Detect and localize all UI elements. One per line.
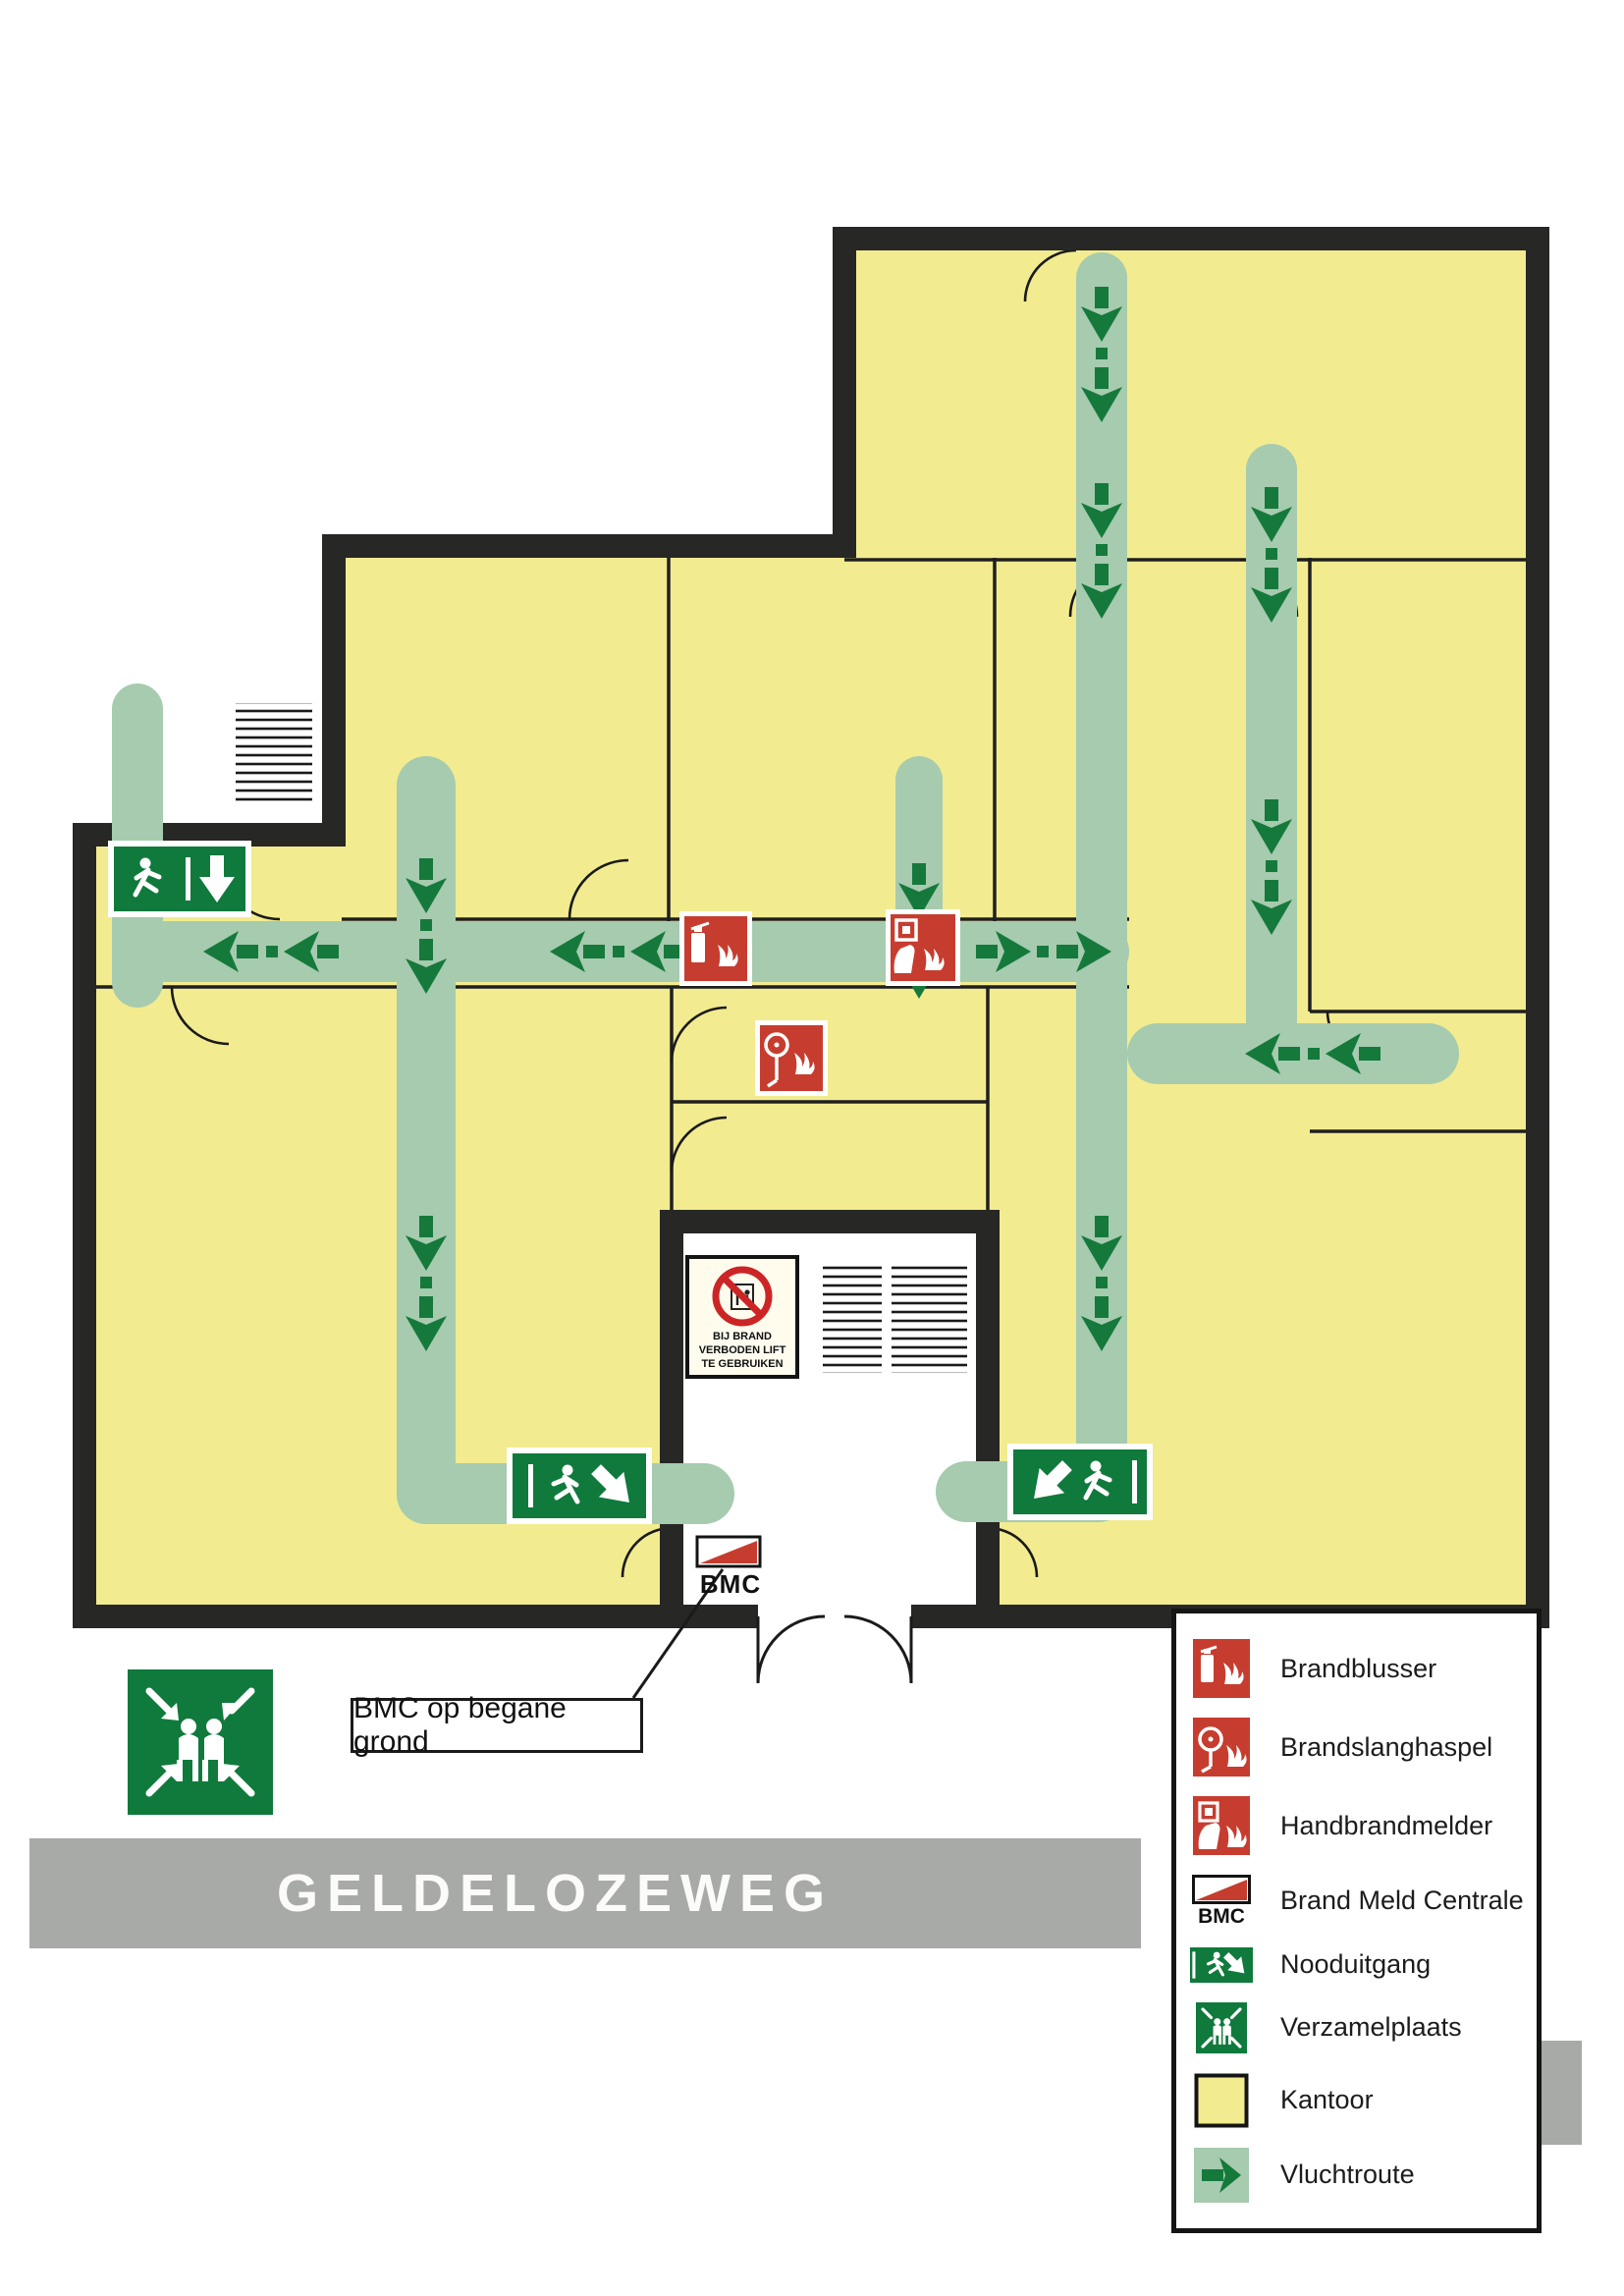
fire-extinguisher-icon — [1190, 1639, 1253, 1698]
office-swatch-icon — [1190, 2073, 1253, 2128]
fire-extinguisher-sign — [679, 911, 752, 986]
bmc-icon-small: BMC — [1190, 1875, 1253, 1927]
bmc-callout-box: BMC op begane grond — [351, 1698, 643, 1753]
fire-hose-reel-icon — [1190, 1718, 1253, 1777]
emergency-exit-icon — [1190, 1947, 1253, 1983]
legend-label: Brandblusser — [1280, 1654, 1436, 1684]
lift-sign-line-3: TE GEBRUIKEN — [701, 1358, 783, 1370]
street-banner-fragment — [1537, 2041, 1582, 2145]
legend-item-kantoor: Kantoor — [1190, 2073, 1537, 2128]
evacuation-floor-plan: BIJ BRAND VERBODEN LIFT TE GEBRUIKEN GEL… — [0, 0, 1624, 2296]
legend-label: Vluchtroute — [1280, 2159, 1415, 2190]
assembly-point-sign — [128, 1669, 273, 1815]
bmc-callout-text: BMC op begane grond — [353, 1692, 640, 1759]
legend: Brandblusser Brandslanghaspel H — [1171, 1609, 1542, 2233]
legend-item-handbrandmelder: Handbrandmelder — [1190, 1796, 1537, 1855]
manual-call-point-icon — [1190, 1796, 1253, 1855]
lift-sign-line-2: VERBODEN LIFT — [699, 1344, 786, 1356]
street-name: GELDELOZEWEG — [277, 1863, 834, 1924]
exit-sign-nw — [108, 841, 251, 917]
legend-label: Brandslanghaspel — [1280, 1732, 1492, 1763]
legend-label: Verzamelplaats — [1280, 2012, 1462, 2043]
legend-item-brandblusser: Brandblusser — [1190, 1639, 1537, 1698]
bmc-sub-label: BMC — [1198, 1906, 1245, 1927]
legend-item-brandslanghaspel: Brandslanghaspel — [1190, 1718, 1537, 1777]
street-banner: GELDELOZEWEG — [29, 1838, 1141, 1948]
manual-call-point-sign — [886, 909, 960, 986]
legend-item-vluchtroute: Vluchtroute — [1190, 2148, 1537, 2203]
elevator-shaft-hatch — [823, 1261, 882, 1373]
legend-item-nooduitgang: Nooduitgang — [1190, 1947, 1537, 1983]
assembly-point-icon — [1190, 2002, 1253, 2053]
exit-sign-se — [1007, 1444, 1153, 1520]
lift-prohibited-sign: BIJ BRAND VERBODEN LIFT TE GEBRUIKEN — [687, 1257, 797, 1377]
bmc-label: BMC — [687, 1569, 774, 1600]
fire-hose-reel-sign — [755, 1020, 828, 1096]
legend-label: Nooduitgang — [1280, 1949, 1431, 1980]
legend-label: Brand Meld Centrale — [1280, 1886, 1524, 1916]
elevator-shaft-hatch — [892, 1261, 967, 1373]
lift-sign-line-1: BIJ BRAND — [713, 1331, 772, 1342]
bmc-icon — [697, 1537, 760, 1566]
legend-label: Kantoor — [1280, 2085, 1374, 2115]
escape-route-swatch-icon — [1190, 2148, 1253, 2203]
staircase-hatch — [236, 703, 312, 801]
legend-item-verzamelplaats: Verzamelplaats — [1190, 2002, 1537, 2053]
legend-label: Handbrandmelder — [1280, 1811, 1492, 1841]
legend-item-bmc: BMC Brand Meld Centrale — [1190, 1875, 1537, 1927]
exit-sign-sw — [507, 1448, 652, 1524]
